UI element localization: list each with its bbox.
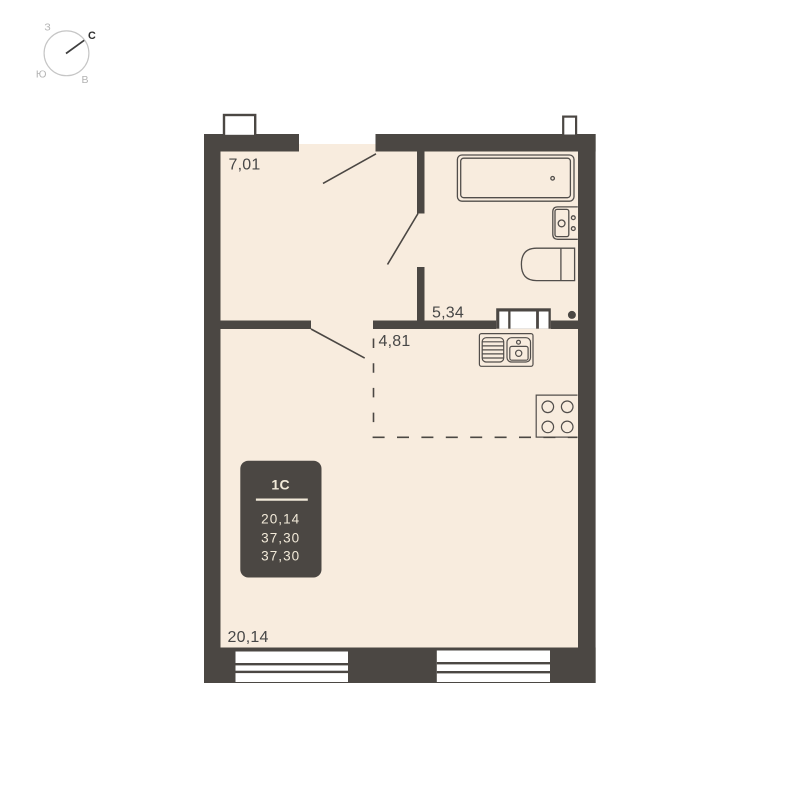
svg-text:С: С [88,30,96,42]
svg-text:З: З [44,22,50,34]
svg-text:Ю: Ю [36,69,47,81]
svg-text:7,01: 7,01 [229,156,261,173]
svg-text:4,81: 4,81 [379,333,411,350]
svg-text:20,14: 20,14 [261,512,300,527]
svg-text:5,34: 5,34 [432,304,464,321]
svg-text:37,30: 37,30 [261,549,300,564]
svg-text:1С: 1С [271,476,290,492]
svg-text:20,14: 20,14 [228,629,269,646]
svg-text:В: В [81,74,88,86]
svg-text:37,30: 37,30 [261,531,300,546]
